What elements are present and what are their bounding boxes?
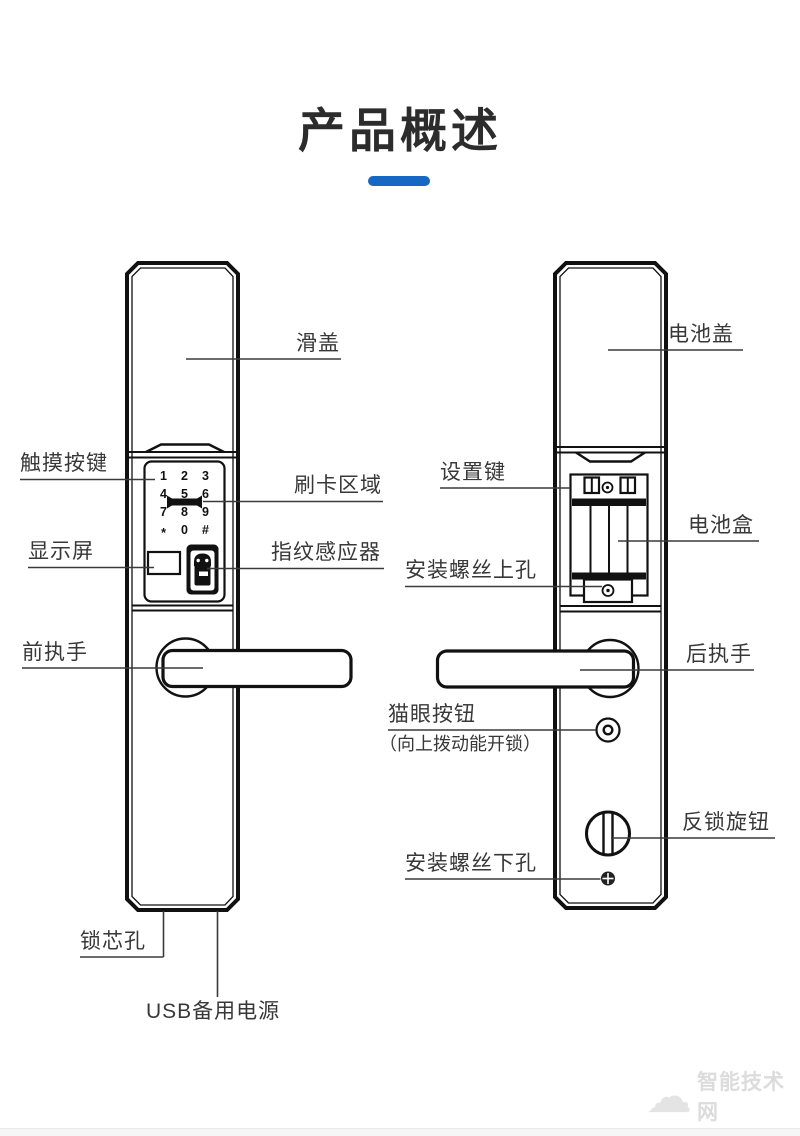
label-fingerprint-sensor: 指纹感应器 bbox=[271, 541, 381, 565]
keypad-key: 7 bbox=[160, 505, 167, 519]
mounting-screw-upper bbox=[603, 585, 614, 596]
keypad-key: 1 bbox=[160, 469, 167, 483]
keypad-key: 8 bbox=[181, 505, 188, 519]
battery-compartment bbox=[560, 475, 661, 612]
label-front-handle: 前执手 bbox=[22, 641, 88, 665]
display-screen bbox=[148, 552, 180, 574]
label-peephole-button: 猫眼按钮 bbox=[388, 703, 476, 727]
rear-handle bbox=[438, 640, 639, 697]
keypad-key: 2 bbox=[181, 469, 188, 483]
keypad-key: 6 bbox=[202, 487, 209, 501]
keypad-key: 3 bbox=[202, 469, 209, 483]
keypad-key: 9 bbox=[202, 505, 209, 519]
watermark: ☁ 智能技术网 bbox=[646, 1066, 800, 1126]
label-slide-cover: 滑盖 bbox=[296, 332, 340, 356]
keypad-key: * bbox=[161, 526, 166, 540]
label-screw-hole-upper: 安装螺丝上孔 bbox=[405, 559, 537, 583]
label-rear-handle: 后执手 bbox=[686, 643, 752, 667]
label-usb-backup-power: USB备用电源 bbox=[146, 1000, 280, 1024]
label-settings-key: 设置键 bbox=[440, 461, 506, 485]
label-lock-cylinder-hole: 锁芯孔 bbox=[80, 930, 146, 954]
label-card-area: 刷卡区域 bbox=[294, 474, 382, 498]
keypad-panel: 1 2 3 4 5 6 7 8 9 * 0 # bbox=[132, 462, 233, 611]
label-screw-hole-lower: 安装螺丝下孔 bbox=[405, 852, 537, 876]
peephole-button bbox=[597, 719, 620, 742]
mounting-screw-lower bbox=[601, 872, 615, 886]
watermark-text: 智能技术网 bbox=[697, 1066, 800, 1126]
anti-lock-knob bbox=[587, 812, 630, 855]
cloud-icon: ☁ bbox=[646, 1073, 692, 1119]
label-display-screen: 显示屏 bbox=[28, 540, 94, 564]
product-overview-page: 产品概述 1 2 3 4 5 6 7 8 9 * 0 bbox=[0, 0, 800, 1136]
label-battery-box: 电池盒 bbox=[688, 514, 754, 538]
fingerprint-sensor bbox=[187, 545, 219, 595]
label-peephole-button-note: （向上拨动能开锁） bbox=[379, 732, 541, 756]
label-battery-cover: 电池盖 bbox=[668, 323, 734, 347]
label-touch-keys: 触摸按键 bbox=[20, 452, 108, 476]
lock-diagram: 1 2 3 4 5 6 7 8 9 * 0 # bbox=[0, 0, 800, 1136]
keypad-key: # bbox=[202, 523, 209, 537]
settings-key-screw bbox=[603, 483, 613, 493]
bottom-divider bbox=[0, 1128, 800, 1136]
keypad-key: 0 bbox=[181, 523, 188, 537]
keypad-key: 4 bbox=[160, 487, 167, 501]
label-anti-lock-knob: 反锁旋钮 bbox=[682, 811, 770, 835]
